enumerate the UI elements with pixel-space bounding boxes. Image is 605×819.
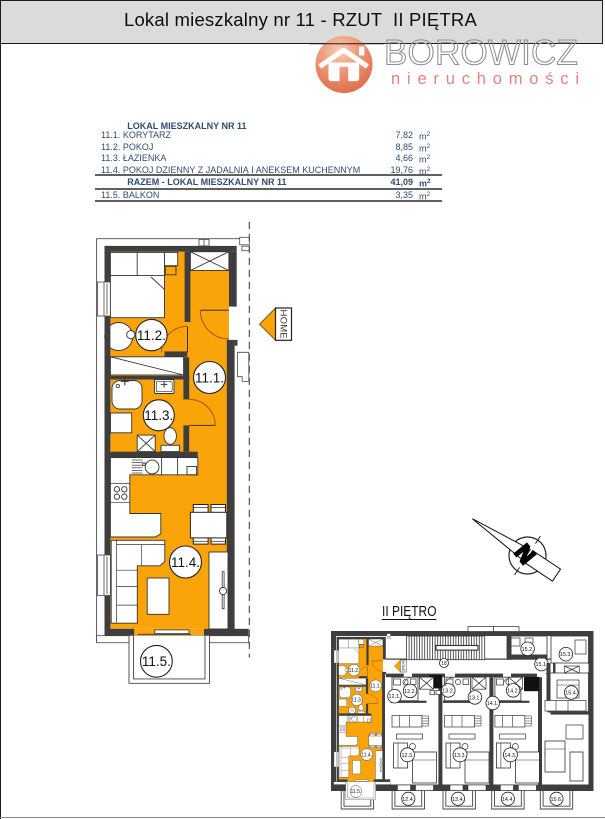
svg-text:11.2.: 11.2. [137,328,166,343]
svg-text:13.3.: 13.3. [454,753,466,759]
svg-text:14.3.: 14.3. [504,753,516,759]
svg-text:11.5.: 11.5. [142,654,171,669]
svg-text:14.4.: 14.4. [502,797,514,803]
svg-text:15.2.: 15.2. [522,647,534,653]
svg-text:15.3.: 15.3. [560,652,572,658]
svg-text:13.4.: 13.4. [452,797,464,803]
svg-text:15.6.: 15.6. [551,797,563,803]
svg-text:14.2.: 14.2. [507,688,519,694]
svg-text:13.1.: 13.1. [469,695,481,701]
svg-text:11.4.: 11.4. [171,555,200,570]
svg-text:18: 18 [441,661,447,667]
svg-text:12.3.: 12.3. [402,753,414,759]
svg-text:12.2.: 12.2. [404,689,416,695]
svg-text:15.4.: 15.4. [565,691,577,697]
svg-text:11.1.: 11.1. [195,370,224,385]
svg-text:11.3.: 11.3. [144,408,173,423]
svg-text:13.2.: 13.2. [442,688,454,694]
svg-text:12.1.: 12.1. [389,694,401,700]
svg-text:15.1.: 15.1. [536,662,548,668]
svg-text:II PIĘTRO: II PIĘTRO [382,603,437,620]
svg-text:14.1.: 14.1. [487,701,499,707]
svg-text:12.4.: 12.4. [402,797,414,803]
svg-text:HOME: HOME [277,310,288,339]
